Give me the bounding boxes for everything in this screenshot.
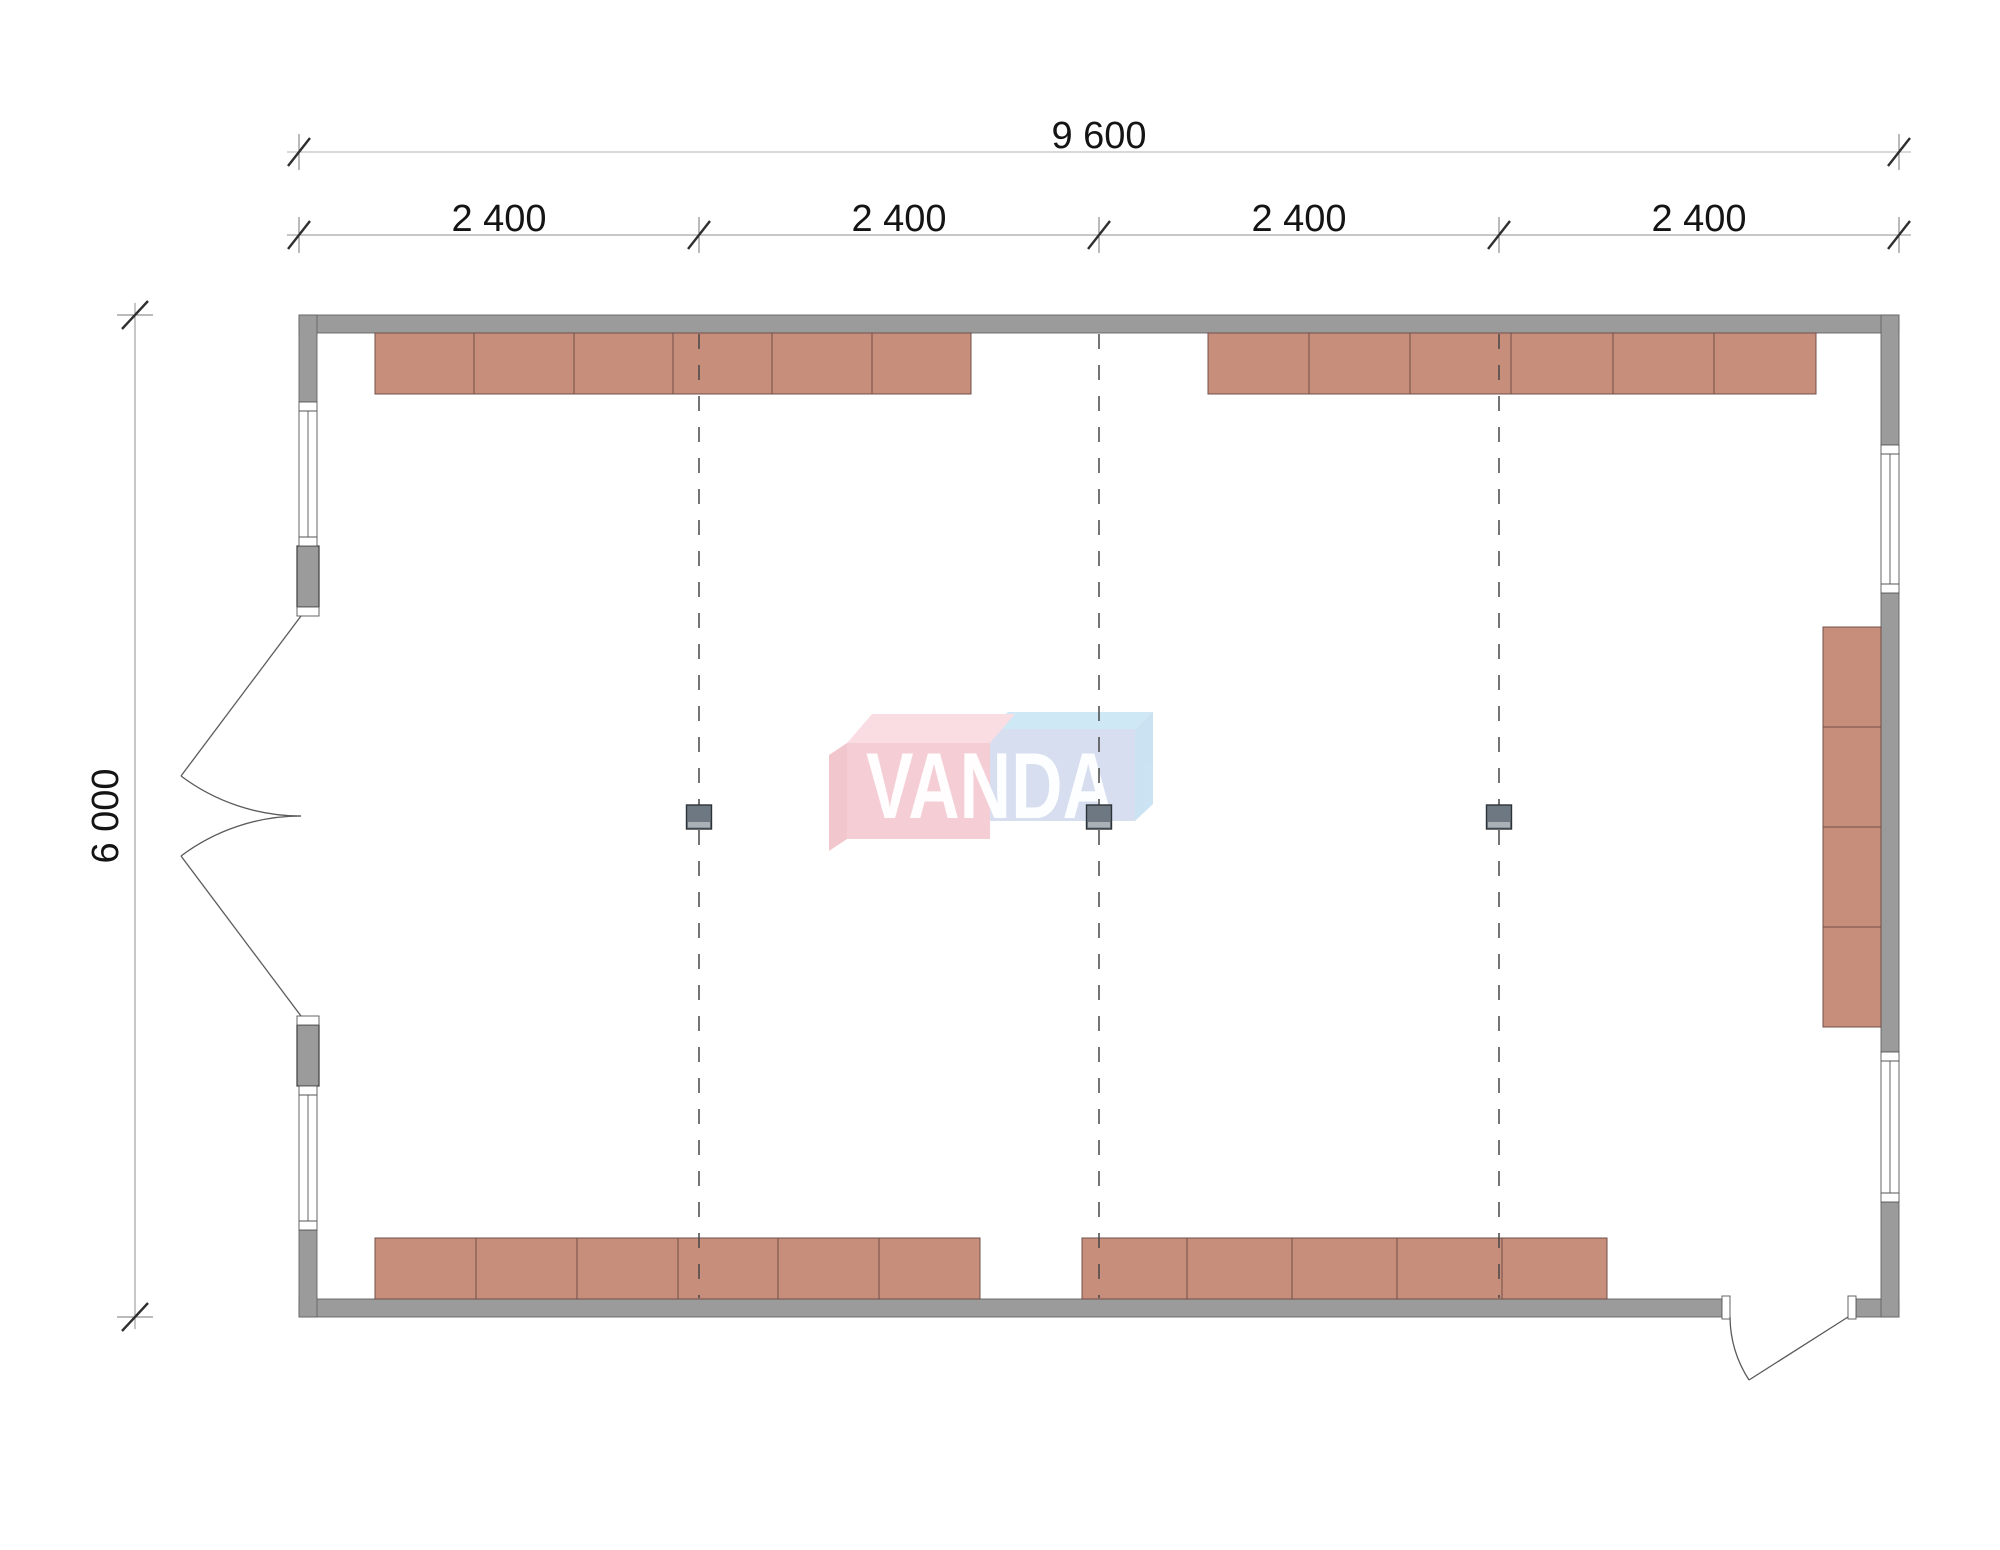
bottom-wall-left [299,1299,1722,1317]
door-jamb [1848,1296,1856,1319]
left-wall-pier-bottom [297,1025,319,1086]
column [687,805,712,829]
left-wall-pier-top [297,546,319,607]
floor-plan-drawing: 9 600 2 400 2 400 2 400 2 400 6 000 [0,0,2000,1550]
columns [687,805,1512,829]
right-wall-middle [1881,593,1899,1052]
door-swing-arc [1730,1317,1749,1380]
dim-overall-width-label: 9 600 [1051,115,1146,157]
column [1087,805,1112,829]
window-left-bottom [299,1086,317,1230]
left-wall-lower [299,1230,317,1317]
dim-overall-height-label: 6 000 [85,768,127,863]
logo-text: VANDA [866,733,1114,838]
dim-segment-label-1: 2 400 [451,198,546,240]
door-jamb [1722,1296,1730,1319]
vanda-logo: VANDA [829,712,1153,851]
right-wall-upper [1881,315,1899,445]
cabinet-run [1208,333,1816,394]
door-leaf [1749,1317,1848,1380]
dimension-overall-height: 6 000 [85,301,153,1331]
dimension-overall-width: 9 600 [287,115,1911,170]
cabinet-run-top-left [375,333,971,394]
cabinet-run-top-right [1208,333,1816,394]
door-leaf [181,616,301,776]
window-right-bottom [1881,1052,1899,1202]
dim-segment-label-3: 2 400 [1251,198,1346,240]
dim-segment-label-4: 2 400 [1651,198,1746,240]
double-door-left [181,607,319,1025]
floor-plan-canvas: 9 600 2 400 2 400 2 400 2 400 6 000 [0,0,2000,1550]
column-base-strip [688,822,710,828]
cabinet-run-right-wall [1823,627,1881,1027]
door-jamb [297,1016,319,1025]
logo-red-side-face [829,743,847,851]
cabinet-run-bottom-right [1082,1238,1607,1299]
entry-door-bottom-right [1722,1296,1856,1380]
column [1487,805,1512,829]
column-base-strip [1488,822,1510,828]
door-swing-arc [181,776,301,816]
cabinet-run [1082,1238,1607,1299]
door-jamb [297,607,319,616]
cabinet-run-bottom-left [375,1238,980,1299]
window-left-top [299,402,317,546]
dim-segment-label-2: 2 400 [851,198,946,240]
column-base-strip [1088,822,1110,828]
window-right-top [1881,445,1899,593]
logo-blue-side-face [1135,712,1153,821]
dimension-segments: 2 400 2 400 2 400 2 400 [287,198,1911,253]
door-swing-arc [181,816,301,856]
top-wall [299,315,1899,333]
left-wall-upper [299,315,317,402]
door-leaf [181,856,301,1016]
right-wall-lower [1881,1202,1899,1317]
